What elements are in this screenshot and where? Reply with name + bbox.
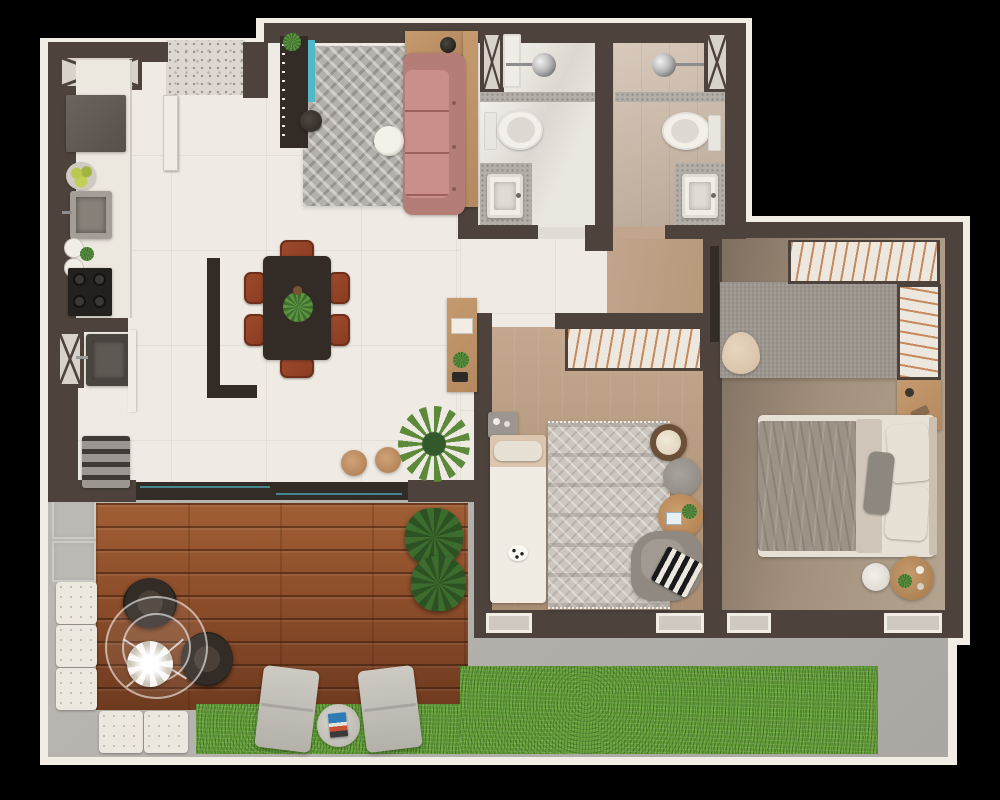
refrigerator — [66, 95, 126, 152]
floor-plan-canvas — [0, 0, 1000, 800]
shower-niche — [503, 34, 521, 88]
magazine — [328, 712, 348, 738]
wall-bathroom1-bottom — [458, 225, 538, 239]
armchair — [631, 531, 702, 601]
sliding-door-glass — [276, 493, 402, 495]
sun-lounger — [254, 665, 320, 753]
bench — [722, 332, 760, 374]
dining-partition-vertical — [207, 258, 220, 388]
entry-door-leaf — [163, 95, 178, 171]
cup-icon — [917, 583, 924, 590]
book-stack — [451, 318, 473, 334]
sofa-button — [452, 101, 456, 105]
coffee-table — [374, 126, 404, 156]
concrete-tile — [52, 541, 96, 582]
console-side — [463, 31, 478, 207]
wall-bathrooms-stub — [585, 225, 613, 251]
vent-shaft-bathroom2 — [704, 31, 730, 93]
concrete-tile — [52, 497, 96, 539]
vase-icon — [493, 418, 500, 425]
ottoman-tile — [56, 668, 97, 710]
ottoman-tile — [144, 711, 188, 753]
toilet-bowl — [662, 112, 710, 150]
toilet-bowl-inner — [671, 119, 699, 143]
faucet-icon — [62, 211, 72, 214]
wall-master-right — [945, 222, 963, 638]
wall-entry-stub — [243, 42, 268, 98]
side-table-wood — [890, 556, 934, 600]
dining-chair — [328, 272, 350, 304]
bed-pillow — [884, 485, 930, 542]
gray-pouf — [663, 458, 701, 496]
sun-lounger — [357, 665, 423, 753]
sofa — [403, 53, 465, 215]
master-window — [727, 613, 771, 633]
master-wardrobe-top — [788, 240, 940, 284]
bed-throw-blanket — [758, 421, 858, 551]
sofa-button — [452, 145, 456, 149]
vent-shaft-bathroom1 — [480, 31, 504, 93]
screenshot-root: { "scene": { "kind": "apartment-floor-pl… — [0, 0, 1000, 800]
flower-centerpiece — [127, 641, 173, 687]
palm-plant-core — [414, 424, 454, 464]
dining-partition-horizontal — [207, 385, 257, 398]
kitchen-sink — [70, 191, 112, 239]
sliding-door-glass — [140, 486, 270, 488]
toilet-tank — [708, 115, 721, 151]
plant-pot-icon — [293, 286, 302, 295]
ottoman-tile — [56, 625, 97, 667]
vanity-basin — [494, 182, 516, 210]
burner-icon — [73, 273, 86, 286]
console-top — [405, 31, 467, 55]
burner-icon — [73, 295, 86, 308]
wood-stool — [375, 447, 401, 473]
bathroom2-threshold — [613, 227, 665, 239]
bed-pillow — [494, 441, 542, 461]
lounger-fold — [261, 703, 313, 712]
shelf-pegs-icon — [282, 44, 285, 140]
faucet-icon — [76, 356, 88, 359]
basket-blanket — [656, 430, 681, 455]
ottoman-tile — [56, 582, 97, 624]
burner-icon — [93, 273, 106, 286]
dining-chair — [328, 314, 350, 346]
desk-object — [452, 372, 468, 382]
laundry-basin — [93, 341, 125, 379]
vent-shaft-laundry — [56, 330, 84, 388]
lawn-grass — [460, 666, 878, 754]
water-heater — [82, 436, 130, 488]
desk-lamp-icon — [905, 388, 914, 397]
vanity-basin — [689, 182, 711, 210]
master-door-leaf — [710, 246, 719, 342]
shower-arm — [674, 63, 704, 66]
entry-terrazzo — [166, 40, 245, 95]
laundry-divider — [128, 330, 136, 412]
table-plant — [283, 292, 313, 322]
speaker-icon — [440, 37, 456, 53]
lounger-fold — [364, 703, 416, 712]
toilet-bowl-inner — [507, 117, 535, 143]
aquarium-strip — [308, 40, 315, 102]
shower-threshold — [615, 92, 725, 102]
shower-head — [652, 53, 676, 77]
wood-stool — [341, 450, 367, 476]
toilet-tank — [484, 112, 497, 150]
fruit-bowl — [66, 162, 96, 190]
headboard — [929, 417, 937, 555]
blanket-basket — [650, 424, 687, 461]
faucet-icon — [516, 193, 521, 198]
tv-panel — [280, 36, 308, 148]
bedroom2-wardrobe — [565, 327, 703, 371]
cup-icon — [916, 566, 924, 574]
table-plant — [898, 574, 912, 588]
ottoman-tile — [99, 711, 143, 753]
hall-console-desk — [447, 298, 477, 392]
vanity-counter — [487, 174, 523, 218]
table-plant — [682, 504, 697, 519]
single-bed — [490, 435, 546, 603]
master-wardrobe-side — [897, 284, 941, 380]
wall-master-top — [703, 222, 963, 238]
table-book — [666, 512, 682, 525]
master-bed — [758, 415, 935, 557]
cooktop — [68, 268, 112, 316]
toilet-bowl — [497, 110, 543, 150]
wall-between-bathrooms — [595, 43, 613, 229]
plush-toy — [508, 545, 528, 561]
sink-basin — [76, 197, 106, 233]
bedroom2-window — [656, 613, 704, 633]
bathroom1-threshold — [538, 227, 585, 239]
magazine-pouf — [317, 704, 360, 747]
plant-on-panel — [283, 33, 301, 51]
dark-pouf — [300, 110, 322, 132]
sofa-button — [452, 187, 456, 191]
large-planter — [411, 556, 466, 611]
burner-icon — [93, 295, 106, 308]
shower-threshold — [480, 92, 595, 102]
wall-living-bottom-right — [408, 480, 476, 502]
master-window — [884, 613, 942, 633]
laundry-sink — [86, 334, 132, 386]
sofa-cushions — [405, 70, 449, 198]
side-table-white — [862, 563, 890, 591]
bedroom2-window — [486, 613, 532, 633]
herb-plant — [80, 247, 94, 261]
vase-icon — [504, 421, 510, 427]
faucet-icon — [711, 193, 716, 198]
shower-head — [532, 53, 556, 77]
terrace-sliding-door — [136, 482, 408, 500]
vanity-counter — [682, 174, 718, 218]
desk-plant — [453, 352, 469, 368]
